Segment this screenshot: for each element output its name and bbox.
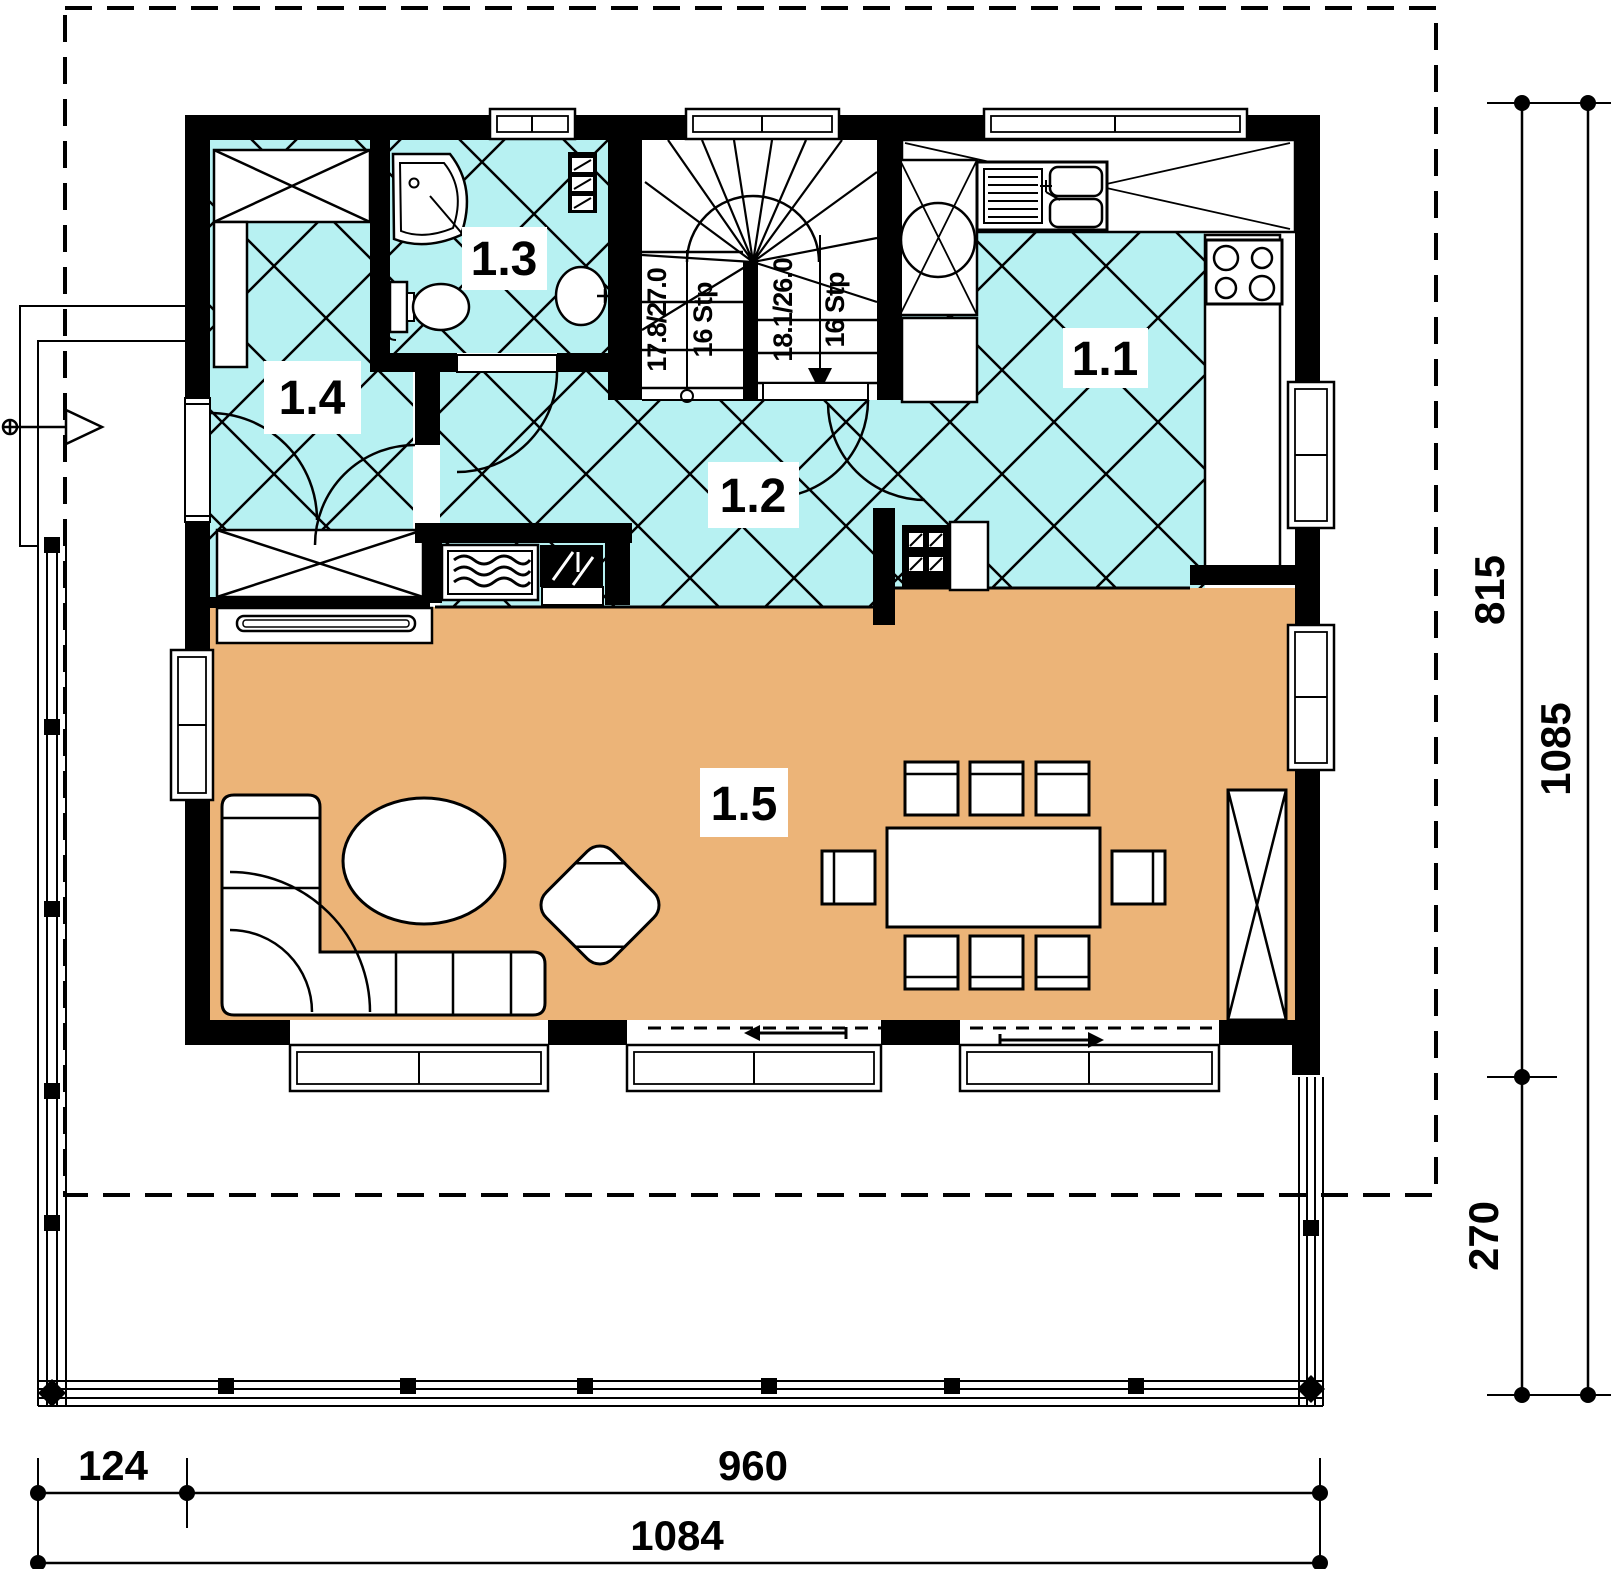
- entrance-marker: [3, 410, 102, 444]
- entrance-arrow-icon: [66, 410, 102, 444]
- wall-stair-right: [877, 140, 902, 400]
- entrance-door-frame: [185, 398, 210, 522]
- dining-table: [887, 828, 1100, 927]
- coffee-table: [343, 798, 505, 924]
- deck-railing-left: [38, 546, 66, 1406]
- floor-plan-canvas: 17.8/27.0 16 Stp 18.1/26.0 16 Stp: [0, 0, 1611, 1569]
- kitchen-counter-small: [950, 522, 988, 590]
- niche-counter: [542, 587, 603, 605]
- floor-plan-drawing: 17.8/27.0 16 Stp 18.1/26.0 16 Stp: [0, 0, 1611, 1569]
- stair-right-steps: 16 Stp: [820, 272, 850, 348]
- wall-hall-1-4: [415, 366, 440, 445]
- room-label-1-2: 1.2: [720, 470, 787, 523]
- wall-bathroom-left: [370, 140, 390, 372]
- dining-chair: [905, 762, 958, 815]
- stair-door-frame: [763, 383, 868, 400]
- window-bottom-1: [290, 1045, 548, 1091]
- bathroom-door-frame: [457, 355, 557, 372]
- stair-left-rise-run: 17.8/27.0: [642, 268, 672, 372]
- deck-railing-right: [1299, 1077, 1323, 1406]
- dining-chair: [970, 762, 1023, 815]
- room-label-1-5: 1.5: [711, 778, 778, 831]
- room-label-1-3: 1.3: [471, 233, 538, 286]
- dining-chair: [970, 936, 1023, 989]
- shower-icon: [393, 154, 467, 244]
- sliding-door-bottom-2: [960, 1045, 1219, 1091]
- wall-stub-left: [873, 508, 895, 625]
- window-right-kitchen: [1288, 382, 1334, 528]
- room-label-1-1: 1.1: [1072, 333, 1139, 386]
- dining-chair: [1036, 936, 1089, 989]
- kitchen-fridge: [902, 318, 977, 402]
- porch-inner-line: [38, 341, 185, 546]
- tall-cabinet: [1228, 790, 1286, 1020]
- stair-left-steps: 16 Stp: [688, 282, 718, 358]
- window-top-1: [490, 109, 575, 139]
- dim-house-height: 815: [1466, 555, 1513, 625]
- hall-appliance: [540, 545, 603, 587]
- dim-terrace-side: 124: [78, 1442, 149, 1489]
- stair-right-rise-run: 18.1/26.0: [768, 258, 798, 362]
- dim-house-width: 960: [718, 1442, 788, 1489]
- room-label-1-4: 1.4: [279, 372, 346, 425]
- stairwell-floor: [642, 140, 877, 400]
- window-top-3: [984, 109, 1247, 139]
- window-left: [171, 650, 213, 800]
- sliding-door-bottom-1: [627, 1045, 881, 1091]
- window-right-living: [1288, 625, 1334, 770]
- wall-stair-left: [608, 140, 642, 400]
- dim-total-height: 1085: [1532, 702, 1579, 795]
- cooktop-icon: [1206, 240, 1282, 304]
- dining-chair: [905, 936, 958, 989]
- wall-stub-right: [1190, 565, 1295, 585]
- stair-spine-wall: [743, 262, 758, 400]
- window-top-2: [686, 109, 839, 139]
- dining-chair: [822, 851, 875, 904]
- dim-total-width: 1084: [630, 1512, 724, 1559]
- wardrobe-side: [214, 222, 247, 367]
- dining-chair: [1036, 762, 1089, 815]
- dim-terrace-depth: 270: [1460, 1201, 1507, 1271]
- vent-hatch-icon: [572, 158, 593, 210]
- kitchen-sink-icon: [977, 162, 1107, 230]
- dining-chair: [1112, 851, 1165, 904]
